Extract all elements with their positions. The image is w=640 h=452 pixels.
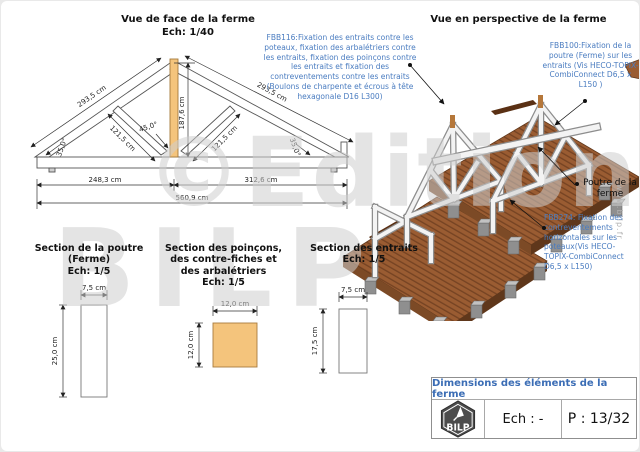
section-poincons-scale: Ech: 1/5 xyxy=(161,277,286,288)
section-entraits-title: Section des entraits xyxy=(299,243,429,254)
section-poincons-height: 12,0 cm xyxy=(187,331,195,360)
dim-angle-left: 35,0° xyxy=(55,137,69,158)
front-view-scale: Ech: 1/40 xyxy=(93,27,283,40)
section-entraits-scale: Ech: 1/5 xyxy=(299,254,429,265)
section-poutre-title: Section de la poutre (Ferme) xyxy=(15,243,163,266)
title-block-page-number: P : 13/32 xyxy=(562,400,636,438)
bilp-logo-text: BILP xyxy=(446,423,469,434)
dim-span-total: 560,9 cm xyxy=(176,194,209,202)
section-poincons-drawing: 12,0 cm 12,0 cm xyxy=(163,295,303,410)
dim-angle-apex: 45,0° xyxy=(138,120,159,134)
title-block: Dimensions des éléments de la ferme BILP… xyxy=(431,377,637,439)
dim-height: 187,6 cm xyxy=(178,96,186,129)
truss-bottom-chord xyxy=(37,157,347,168)
title-block-row: BILP Ech : - P : 13/32 xyxy=(432,400,636,438)
label-poutre-de-la-ferme: Poutre de la ferme xyxy=(581,178,639,200)
bilp-logo: BILP xyxy=(439,399,477,439)
section-poutre-width: 7,5 cm xyxy=(82,284,106,292)
section-entraits-width: 7,5 cm xyxy=(341,286,365,294)
dim-span-right: 312,6 cm xyxy=(245,176,278,184)
section-poutre-title-block: Section de la poutre (Ferme) Ech: 1/5 xyxy=(15,243,163,277)
section-poutre-scale: Ech: 1/5 xyxy=(15,266,163,277)
dim-angle-right: 35,0° xyxy=(288,137,302,158)
front-view-title: Vue de face de la ferme xyxy=(93,14,283,27)
title-block-logo-cell: BILP xyxy=(432,400,485,438)
dim-span-left: 248,3 cm xyxy=(89,176,122,184)
section-poutre-height: 25,0 cm xyxy=(51,337,59,366)
section-entraits-title-block: Section des entraits Ech: 1/5 xyxy=(299,243,429,266)
plan-sheet: Vue de face de la ferme Ech: 1/40 Vue en… xyxy=(1,1,639,451)
annotation-fbb116: FBB116:Fixation des entraits contre les … xyxy=(259,33,421,101)
section-poincons-title: Section des poinçons, des contre-fiches … xyxy=(161,243,286,277)
section-poincons-title-block: Section des poinçons, des contre-fiches … xyxy=(161,243,286,289)
annotation-fbb274: FBB274: Fixation des contreventements ho… xyxy=(544,213,639,272)
section-poutre-drawing: 7,5 cm 25,0 cm xyxy=(19,277,159,422)
title-block-scale: Ech : - xyxy=(485,400,562,438)
section-entraits-drawing: 7,5 cm 17,5 cm xyxy=(299,283,439,413)
section-entraits-height: 17,5 cm xyxy=(311,327,319,356)
section-poincons-width: 12,0 cm xyxy=(221,300,250,308)
truss-king-post xyxy=(170,59,178,157)
annotation-fbb100: FBB100:Fixation de la poutre (Ferme) sur… xyxy=(542,41,639,90)
title-block-title: Dimensions des éléments de la ferme xyxy=(432,378,636,400)
front-view-title-block: Vue de face de la ferme Ech: 1/40 xyxy=(93,14,283,39)
perspective-view-title: Vue en perspective de la ferme xyxy=(416,14,621,27)
